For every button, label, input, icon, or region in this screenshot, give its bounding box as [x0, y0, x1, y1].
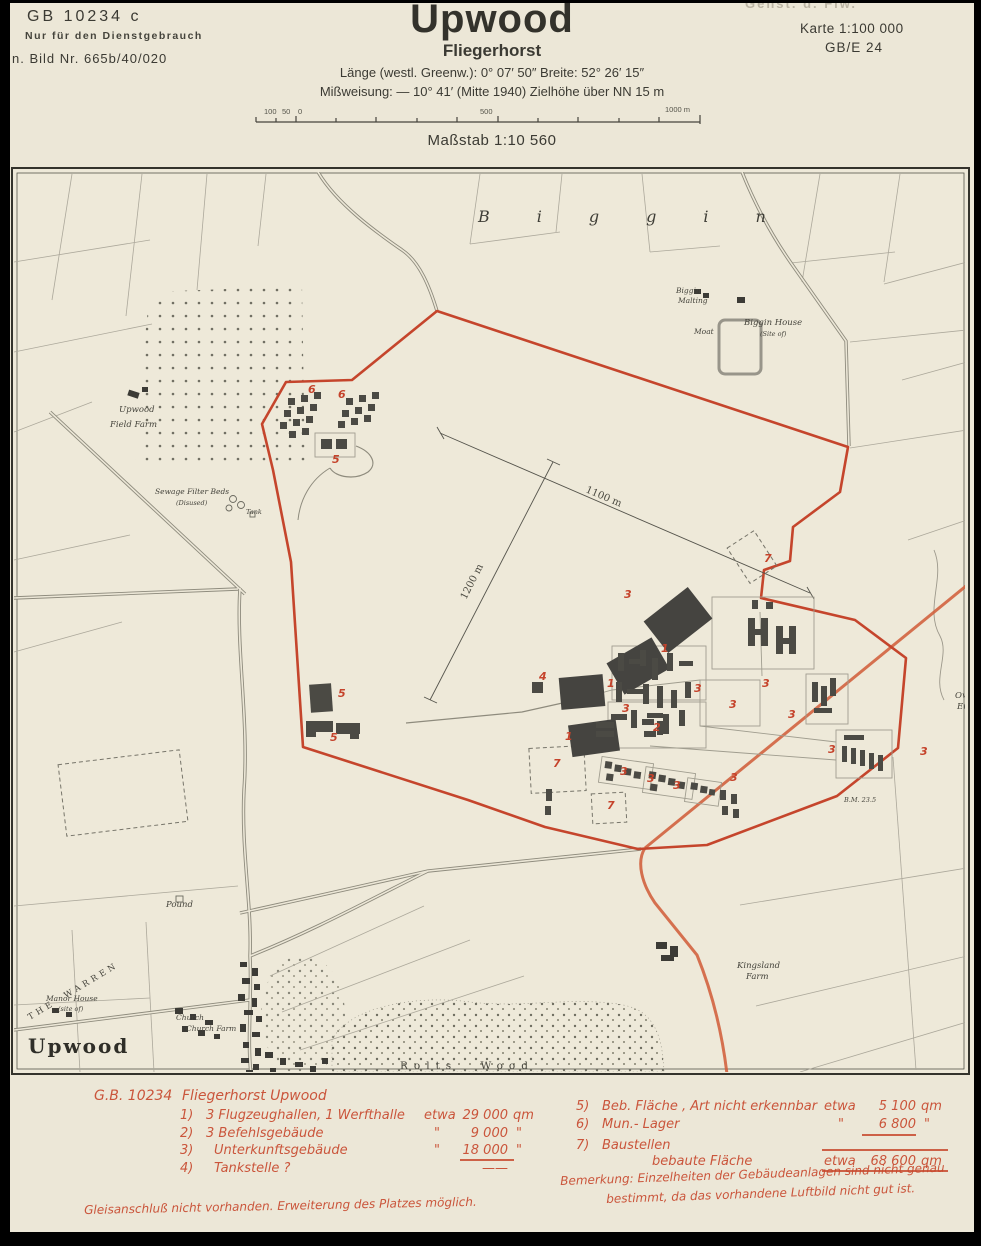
- label-biggin-malting-1: Biggin: [675, 286, 701, 295]
- label-sewage-beds: Sewage Filter Beds: [155, 487, 229, 496]
- label-upwood-field: Upwood: [119, 405, 155, 415]
- label-biggin-malting-2: Malting: [677, 296, 708, 305]
- map-canvas: Biggin Upwood Rolts Wood THE WARREN King…: [10, 3, 974, 1232]
- legend-item-1-value: 29 000: [446, 1108, 508, 1123]
- map-marker-3: 3: [920, 745, 928, 758]
- map-marker-3: 3: [694, 682, 702, 695]
- legend-item-4-no: 4): [180, 1161, 193, 1176]
- label-tank: Tank: [246, 508, 262, 516]
- map-marker-1: 1: [661, 642, 669, 655]
- legend-item-3-text: Unterkunftsgebäude: [214, 1143, 348, 1158]
- legend-item-1-text: 3 Flugzeughallen, 1 Werfthalle: [206, 1108, 405, 1123]
- map-marker-3: 3: [828, 743, 836, 756]
- map-marker-3: 3: [624, 588, 632, 601]
- legend-underline-6800: [862, 1134, 916, 1136]
- legend-item-1-unit: qm: [513, 1108, 534, 1123]
- map-marker-5: 5: [338, 687, 346, 700]
- map-marker-4: 4: [538, 670, 547, 683]
- map-marker-3: 3: [673, 779, 681, 792]
- map-marker-3: 3: [729, 698, 737, 711]
- legend-item-4-text: Tankstelle ?: [214, 1161, 290, 1176]
- label-biggin-house-site: (Site of): [760, 330, 787, 338]
- map-marker-3: 3: [647, 772, 655, 785]
- legend-item-5-unit: qm: [921, 1099, 942, 1114]
- legend-item-1-no: 1): [180, 1108, 193, 1123]
- legend-item-6-value: 6 800: [858, 1117, 916, 1132]
- map-marker-7: 7: [607, 799, 615, 812]
- map-marker-7: 7: [764, 552, 772, 565]
- legend-sum-rule: [822, 1149, 948, 1151]
- legend-item-5-approx: etwa: [824, 1099, 856, 1114]
- legend-item-5-text: Beb. Fläche , Art nicht erkennbar: [602, 1099, 817, 1114]
- legend-item-3-unit: ": [516, 1143, 522, 1158]
- legend-item-4-value: ——: [446, 1161, 508, 1176]
- map-marker-3: 3: [788, 708, 796, 721]
- map-marker-3: 3: [620, 765, 628, 778]
- label-moat: Moat: [693, 327, 715, 336]
- legend-item-2-approx: ": [434, 1126, 440, 1141]
- legend-item-6-text: Mun.- Lager: [602, 1117, 679, 1132]
- legend-item-3-approx: ": [434, 1143, 440, 1158]
- legend-item-2-text: 3 Befehlsgebäude: [206, 1126, 323, 1141]
- map-marker-3: 3: [762, 677, 770, 690]
- map-marker-7: 7: [553, 757, 561, 770]
- label-manor-house: Manor House: [45, 994, 98, 1003]
- label-manor-site: (site of): [58, 1005, 84, 1013]
- label-upwood-village: Upwood: [28, 1034, 129, 1058]
- label-church-farm: Church Farm: [186, 1024, 236, 1033]
- legend-item-6-unit: ": [924, 1117, 930, 1132]
- label-pound: Pound: [165, 900, 193, 910]
- label-biggin-house: Biggin House: [743, 318, 802, 328]
- legend-item-5-no: 5): [576, 1099, 589, 1114]
- map-marker-1: 1: [565, 730, 573, 743]
- label-benchmark: B.M. 23.5: [843, 796, 876, 804]
- label-kingsland: Kingsland: [736, 961, 781, 971]
- map-marker-3: 3: [622, 702, 630, 715]
- map-marker-5: 5: [330, 731, 338, 744]
- legend-title: Fliegerhorst Upwood: [182, 1088, 327, 1104]
- label-upwood-field-farm: Field Farm: [109, 420, 157, 430]
- legend-item-3-value: 18 000: [446, 1143, 508, 1158]
- legend-item-2-unit: ": [516, 1126, 522, 1141]
- legend-item-6-approx: ": [838, 1117, 844, 1132]
- fuel-point-building: [532, 682, 543, 693]
- legend-item-7-text: Baustellen: [602, 1138, 670, 1153]
- map-marker-2: 2: [653, 721, 661, 734]
- legend-item-2-no: 2): [180, 1126, 193, 1141]
- label-rolts-wood: Rolts Wood: [400, 1060, 534, 1072]
- label-kingsland-farm: Farm: [745, 972, 769, 982]
- map-marker-6: 6: [338, 388, 346, 401]
- label-biggin: Biggin: [477, 207, 813, 226]
- legend-gb-number: G.B. 10234: [94, 1088, 172, 1104]
- legend-item-7-no: 7): [576, 1138, 589, 1153]
- legend-item-5-value: 5 100: [858, 1099, 916, 1114]
- scanned-map-sheet: GB 10234 c Nur für den Dienstgebrauch n.…: [10, 3, 974, 1232]
- legend-item-3-no: 3): [180, 1143, 193, 1158]
- label-sewage-disused: (Disused): [176, 499, 208, 507]
- map-marker-5: 5: [332, 453, 340, 466]
- scalebar-graphic: [256, 115, 700, 124]
- legend-item-2-value: 9 000: [446, 1126, 508, 1141]
- legend-total-label: bebaute Fläche: [652, 1154, 752, 1169]
- label-owl-end: End: [956, 702, 974, 712]
- map-marker-3: 3: [730, 771, 738, 784]
- map-marker-6: 6: [308, 383, 316, 396]
- label-church: Church: [176, 1013, 204, 1022]
- legend-item-6-no: 6): [576, 1117, 589, 1132]
- map-marker-1: 1: [607, 677, 615, 690]
